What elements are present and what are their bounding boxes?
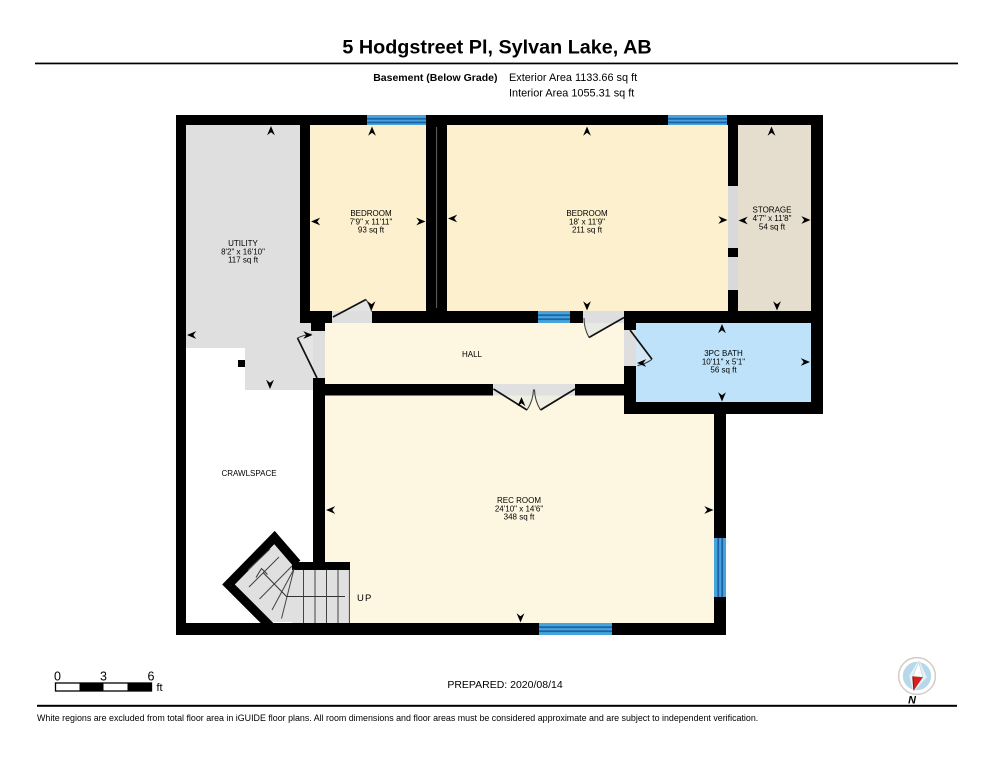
svg-text:348 sq ft: 348 sq ft	[504, 513, 535, 522]
svg-text:211 sq ft: 211 sq ft	[572, 226, 603, 235]
svg-text:0: 0	[54, 670, 61, 684]
svg-text:White regions are excluded fro: White regions are excluded from total fl…	[37, 713, 758, 723]
svg-text:HALL: HALL	[462, 350, 483, 359]
svg-text:CRAWLSPACE: CRAWLSPACE	[221, 469, 276, 478]
svg-text:PREPARED: 2020/08/14: PREPARED: 2020/08/14	[447, 679, 563, 691]
svg-text:Basement (Below Grade): Basement (Below Grade)	[373, 72, 497, 84]
svg-text:Interior Area 1055.31 sq ft: Interior Area 1055.31 sq ft	[509, 87, 634, 99]
svg-text:N: N	[908, 695, 916, 707]
svg-text:Exterior Area 1133.66 sq ft: Exterior Area 1133.66 sq ft	[509, 72, 637, 84]
svg-text:117 sq ft: 117 sq ft	[228, 256, 259, 265]
svg-text:54 sq ft: 54 sq ft	[759, 222, 786, 231]
svg-text:ft: ft	[157, 682, 163, 694]
svg-text:93 sq ft: 93 sq ft	[358, 226, 385, 235]
svg-text:3: 3	[100, 670, 107, 684]
svg-text:56 sq ft: 56 sq ft	[710, 366, 737, 375]
svg-text:5 Hodgstreet Pl, Sylvan Lake,: 5 Hodgstreet Pl, Sylvan Lake, AB	[342, 37, 651, 59]
svg-text:UP: UP	[357, 593, 373, 604]
svg-text:6: 6	[148, 670, 155, 684]
